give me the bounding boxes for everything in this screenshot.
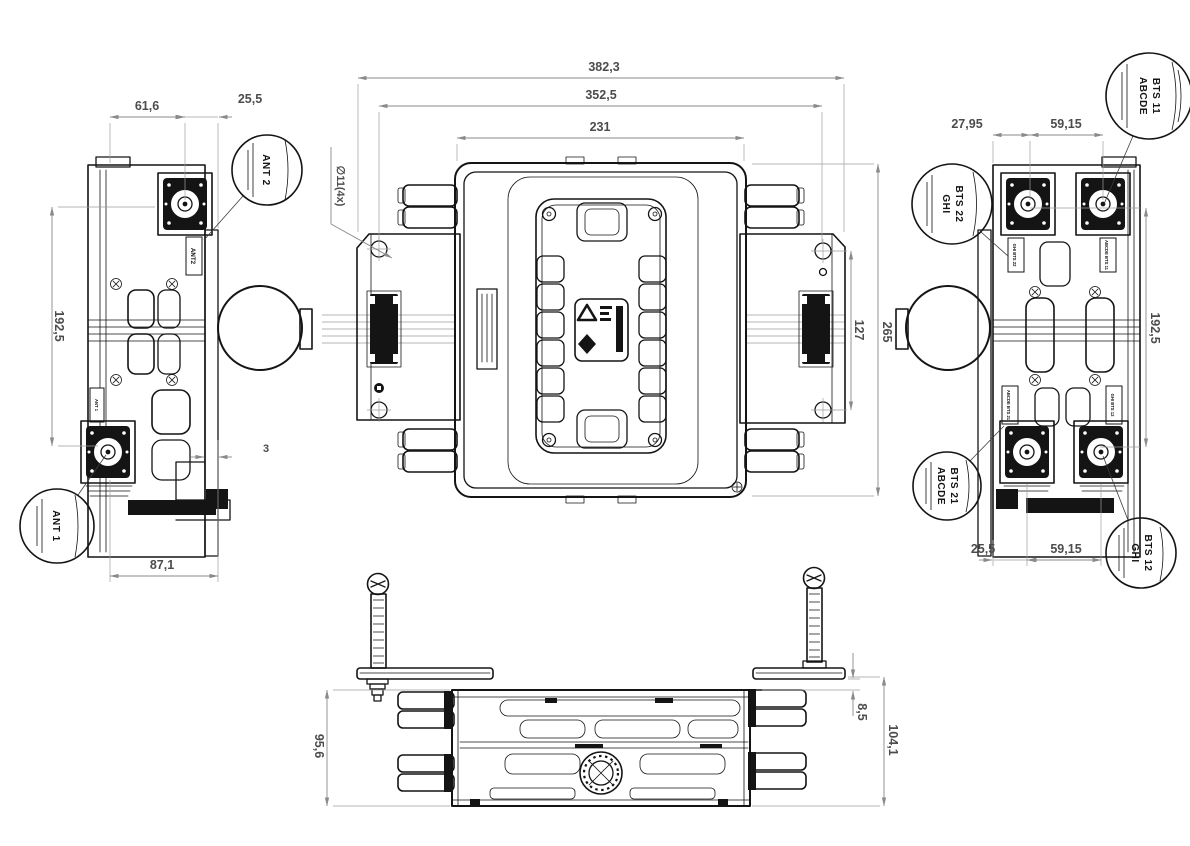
svg-text:ANT 1: ANT 1 [50,510,61,541]
svg-text:104,1: 104,1 [886,724,900,755]
svg-text:ANT 2: ANT 2 [260,154,271,185]
svg-text:∅11(4x): ∅11(4x) [334,166,346,207]
drawing-sheet: ANT2 ANT 1 61,6 25,5 192,5 [0,0,1190,846]
svg-text:59,15: 59,15 [1050,117,1081,131]
svg-text:192,5: 192,5 [52,310,66,341]
ant1-tag-text: ANT 1 [94,399,99,412]
svg-text:BTS 11: BTS 11 [1150,78,1161,114]
bts12-tag-text: GHI BTS 12 [1110,394,1115,417]
svg-text:3: 3 [263,443,269,455]
svg-text:352,5: 352,5 [585,88,616,102]
bts22-tag-text: GHI BTS 22 [1012,244,1017,267]
svg-text:127: 127 [852,320,866,341]
bts21-connector [1000,421,1054,483]
technical-drawing: ANT2 ANT 1 61,6 25,5 192,5 [0,0,1190,846]
svg-text:BTS 22: BTS 22 [953,186,964,223]
svg-text:8,5: 8,5 [855,703,869,720]
svg-text:192,5: 192,5 [1148,312,1162,343]
bts12-connector [1074,421,1128,483]
svg-text:61,6: 61,6 [135,99,159,113]
svg-text:BTS 21: BTS 21 [948,468,959,505]
svg-text:231: 231 [590,120,611,134]
svg-text:59,15: 59,15 [1050,542,1081,556]
bts11-tag-text: ABCDE BTS 11 [1104,240,1109,271]
svg-text:25,5: 25,5 [238,92,262,106]
bts22-connector [1001,173,1055,235]
svg-text:GHI: GHI [1129,543,1140,562]
svg-text:265: 265 [880,322,894,343]
ant2-tag-text: ANT2 [189,248,196,265]
svg-text:BTS 12: BTS 12 [1142,535,1153,572]
svg-text:25,5: 25,5 [971,542,995,556]
svg-text:ABCDE: ABCDE [935,467,946,505]
din-clamp-right [799,291,833,367]
bts21-tag-text: ABCDE BTS 21 [1006,390,1011,421]
svg-text:95,6: 95,6 [312,734,326,758]
din-clamp-left [367,291,401,367]
svg-text:ABCDE: ABCDE [1137,77,1148,115]
svg-text:27,95: 27,95 [951,117,982,131]
svg-text:382,3: 382,3 [588,60,619,74]
ant1-connector [81,421,135,483]
svg-text:GHI: GHI [940,194,951,213]
svg-text:87,1: 87,1 [150,558,174,572]
